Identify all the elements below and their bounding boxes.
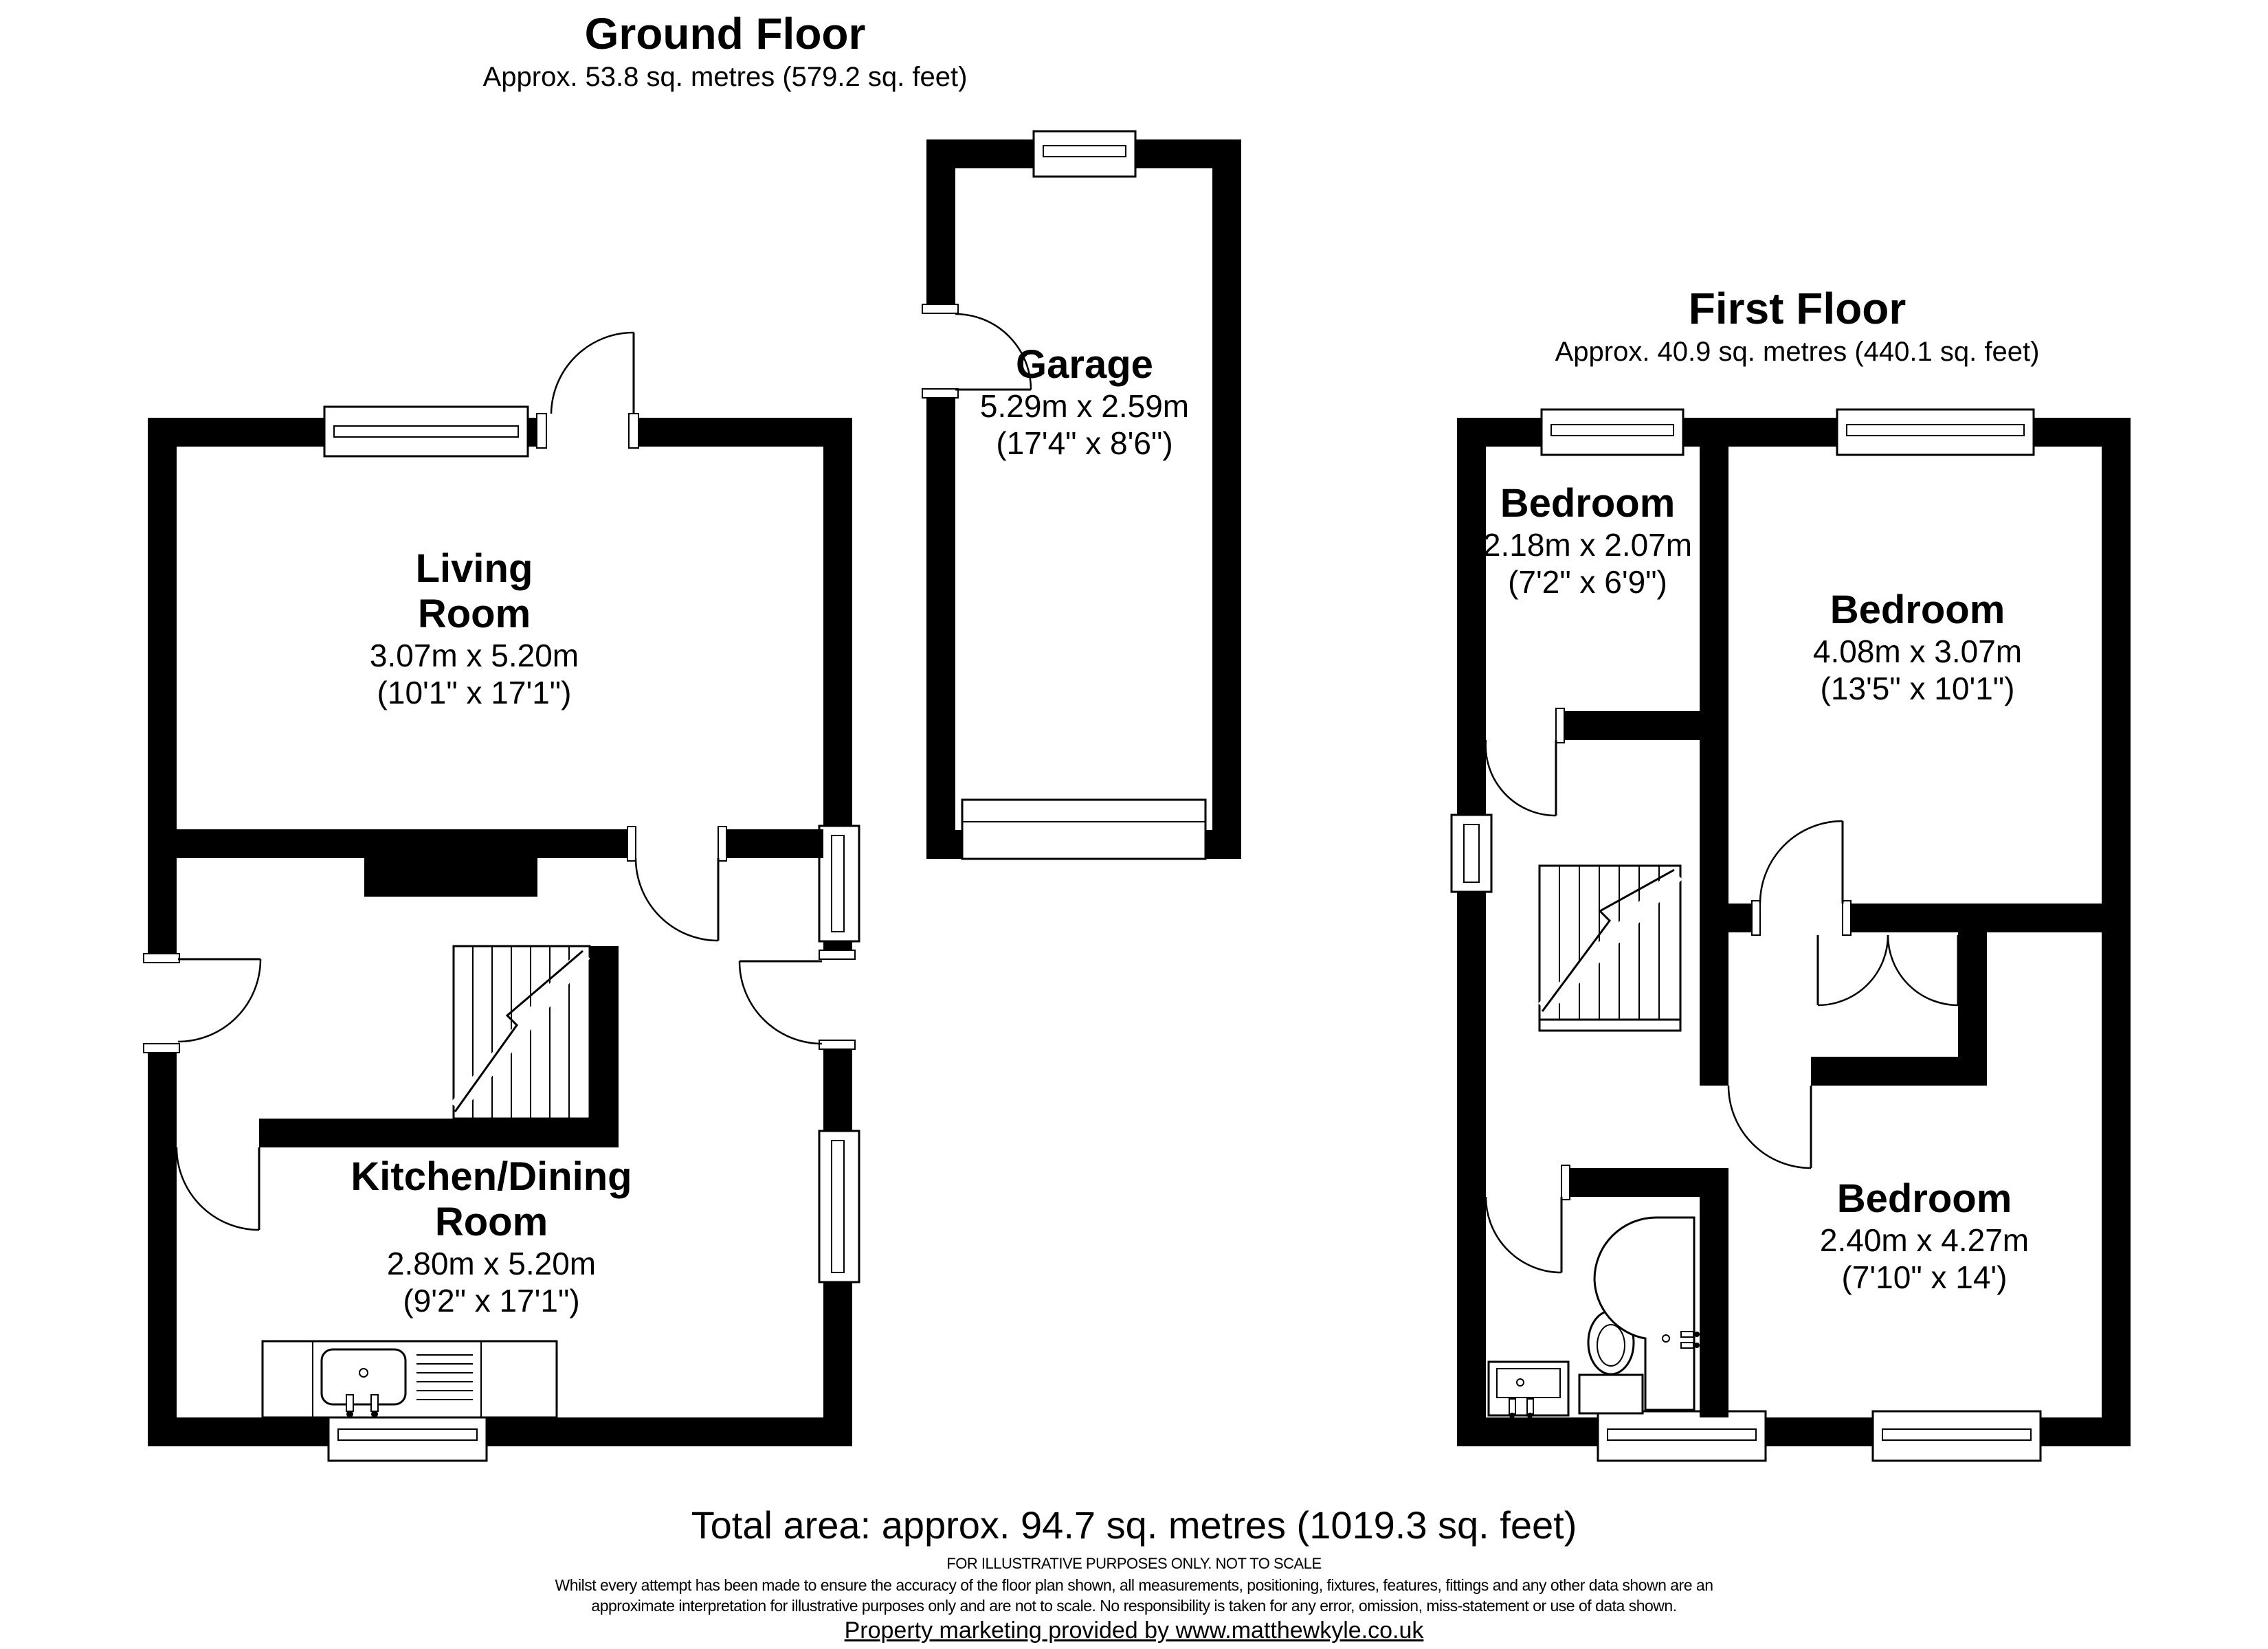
garage-outer-walls bbox=[926, 139, 1241, 859]
living-room-label: Living Room 3.07m x 5.20m (10'1" x 17'1"… bbox=[370, 546, 579, 711]
bedroom-small-dims-imperial: (7'2" x 6'9") bbox=[1483, 563, 1692, 601]
garage-door bbox=[962, 800, 1205, 859]
ff-stair-railing bbox=[1539, 1020, 1680, 1031]
disclaimer-line-1: Whilst every attempt has been made to en… bbox=[555, 1575, 1713, 1595]
ff-bedroom-small-window bbox=[1542, 410, 1683, 455]
bedroom-large-label: Bedroom 4.08m x 3.07m (13'5" x 10'1") bbox=[1813, 587, 2022, 707]
first-floor-title: First Floor bbox=[1555, 283, 2040, 334]
gf-kitchen-counter bbox=[263, 1341, 557, 1417]
bedroom-small-label: Bedroom 2.18m x 2.07m (7'2" x 6'9") bbox=[1483, 481, 1692, 601]
bedroom-back-dims-imperial: (7'10" x 14') bbox=[1820, 1259, 2029, 1296]
living-room-name-line2: Room bbox=[370, 592, 579, 637]
garage-window-top bbox=[1034, 131, 1135, 177]
garage-dims-imperial: (17'4" x 8'6") bbox=[980, 425, 1189, 462]
bedroom-large-dims-imperial: (13'5" x 10'1") bbox=[1813, 670, 2022, 707]
kitchen-name-line2: Room bbox=[351, 1200, 632, 1245]
ff-stairs bbox=[1539, 866, 1680, 1031]
garage-name: Garage bbox=[980, 342, 1189, 388]
gf-living-hall-door bbox=[627, 827, 726, 941]
ff-bedroom-large-door bbox=[1752, 821, 1851, 935]
bedroom-small-name: Bedroom bbox=[1483, 481, 1692, 526]
ground-floor-subtitle: Approx. 53.8 sq. metres (579.2 sq. feet) bbox=[483, 59, 968, 95]
gf-stairs bbox=[454, 946, 590, 1119]
gf-front-door bbox=[537, 333, 638, 448]
illustrative-note: FOR ILLUSTRATIVE PURPOSES ONLY. NOT TO S… bbox=[946, 1554, 1321, 1573]
total-area-text: Total area: approx. 94.7 sq. metres (101… bbox=[691, 1503, 1577, 1547]
floorplan-drawing bbox=[0, 0, 2268, 1649]
marketing-link[interactable]: Property marketing provided by www.matth… bbox=[845, 1616, 1424, 1645]
gf-living-window-top bbox=[324, 407, 528, 456]
gf-chimney-block bbox=[364, 829, 537, 897]
bedroom-back-dims: 2.40m x 4.27m bbox=[1820, 1222, 2029, 1259]
ff-bedroom-large-window bbox=[1837, 410, 2034, 455]
gf-kitchen-door bbox=[177, 1147, 259, 1230]
gf-back-door bbox=[740, 950, 855, 1049]
bedroom-small-dims: 2.18m x 2.07m bbox=[1483, 526, 1692, 563]
kitchen-dims: 2.80m x 5.20m bbox=[351, 1245, 632, 1282]
ff-basin-fixture bbox=[1489, 1362, 1568, 1418]
ff-bedroom-back-window bbox=[1873, 1411, 2041, 1461]
garage-plan bbox=[922, 131, 1241, 859]
bedroom-back-name: Bedroom bbox=[1820, 1176, 2029, 1222]
ff-bathroom-window bbox=[1598, 1411, 1766, 1461]
living-room-name-line1: Living bbox=[370, 546, 579, 592]
disclaimer-line-2: approximate interpretation for illustrat… bbox=[555, 1595, 1713, 1616]
first-floor-subtitle: Approx. 40.9 sq. metres (440.1 sq. feet) bbox=[1555, 334, 2040, 370]
living-room-dims: 3.07m x 5.20m bbox=[370, 637, 579, 674]
first-floor-title-block: First Floor Approx. 40.9 sq. metres (440… bbox=[1555, 283, 2040, 370]
ff-bedroom-small-door bbox=[1486, 708, 1564, 816]
gf-hall-door-left bbox=[144, 954, 260, 1053]
floorplan-page: Ground Floor Approx. 53.8 sq. metres (57… bbox=[0, 0, 2268, 1649]
ff-bathroom-door bbox=[1486, 1165, 1570, 1272]
disclaimer-block: Whilst every attempt has been made to en… bbox=[555, 1575, 1713, 1616]
bedroom-large-name: Bedroom bbox=[1813, 587, 2022, 633]
kitchen-name-line1: Kitchen/Dining bbox=[351, 1154, 632, 1200]
gf-right-window-lower bbox=[819, 1131, 859, 1282]
gf-right-window-upper bbox=[819, 826, 859, 941]
ground-floor-title: Ground Floor bbox=[483, 8, 968, 59]
bedroom-back-label: Bedroom 2.40m x 4.27m (7'10" x 14') bbox=[1820, 1176, 2029, 1296]
garage-label: Garage 5.29m x 2.59m (17'4" x 8'6") bbox=[980, 342, 1189, 462]
kitchen-dining-label: Kitchen/Dining Room 2.80m x 5.20m (9'2" … bbox=[351, 1154, 632, 1319]
gf-kitchen-window bbox=[329, 1411, 487, 1461]
garage-dims: 5.29m x 2.59m bbox=[980, 388, 1189, 425]
living-room-dims-imperial: (10'1" x 17'1") bbox=[370, 674, 579, 711]
bedroom-large-dims: 4.08m x 3.07m bbox=[1813, 633, 2022, 670]
ff-cupboard-doors bbox=[1818, 935, 1958, 1005]
ff-bedroom-back-door bbox=[1728, 1086, 1811, 1168]
ground-floor-title-block: Ground Floor Approx. 53.8 sq. metres (57… bbox=[483, 8, 968, 95]
ff-landing-window bbox=[1452, 815, 1491, 892]
kitchen-dims-imperial: (9'2" x 17'1") bbox=[351, 1282, 632, 1319]
